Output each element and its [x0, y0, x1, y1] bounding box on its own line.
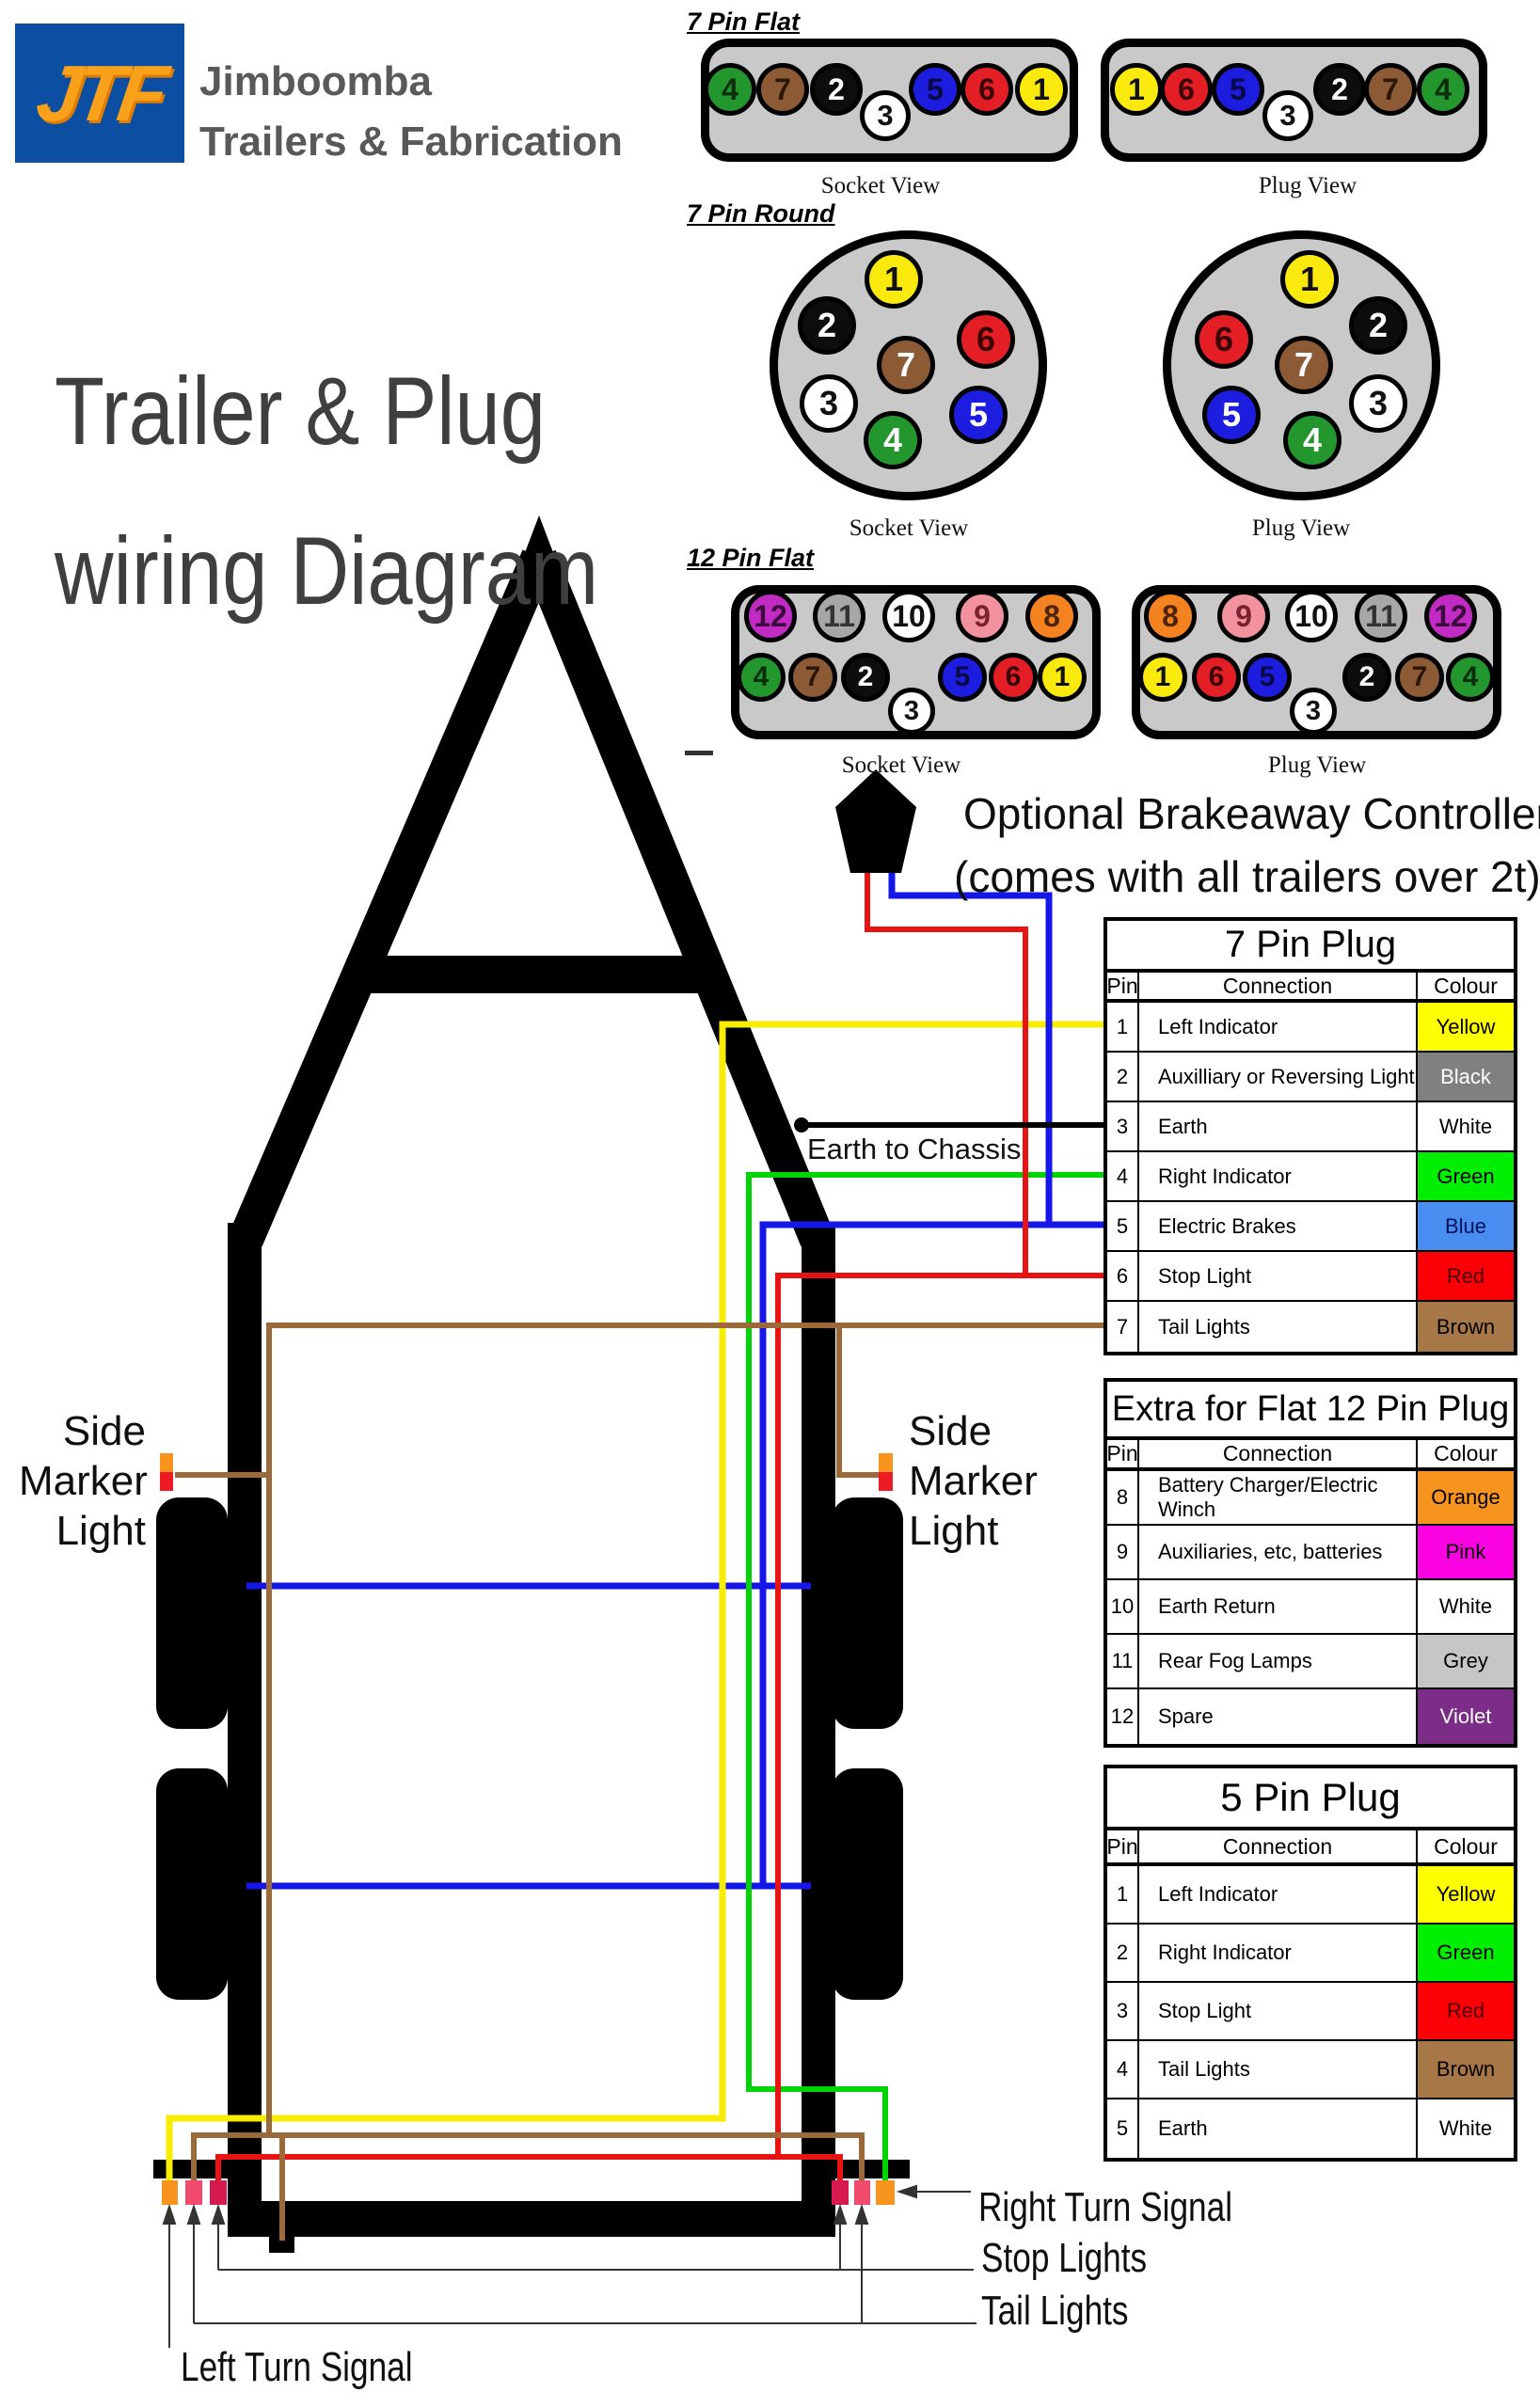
- connection-name: Earth: [1139, 2099, 1418, 2158]
- flat7-plug-pin-7: 7: [1364, 63, 1417, 116]
- colour-cell: Black: [1418, 1053, 1514, 1101]
- round7-socket-pin-4: 4: [864, 411, 922, 469]
- round7-socket-pin-1: 1: [865, 250, 923, 309]
- flat12-socket-pin-10: 10: [882, 590, 935, 642]
- round7-plug-pin-3: 3: [1349, 374, 1407, 433]
- table-7pin-row-7: 7Tail LightsBrown: [1107, 1302, 1514, 1352]
- colour-cell: White: [1418, 1102, 1514, 1150]
- brakeaway-label-line2: (comes with all trailers over 2t): [954, 851, 1540, 902]
- pin-number: 5: [1107, 1202, 1139, 1250]
- round7-socket-pin-2: 2: [798, 296, 856, 355]
- flat12-plug-pin-10: 10: [1285, 590, 1338, 642]
- colour-cell: Yellow: [1418, 1866, 1514, 1923]
- colour-cell: Blue: [1418, 1202, 1514, 1250]
- connection-name: Rear Fog Lamps: [1139, 1635, 1418, 1687]
- colour-cell: Green: [1418, 1925, 1514, 1981]
- connection-name: Spare: [1139, 1689, 1418, 1744]
- flat12-socket-pin-4: 4: [737, 653, 786, 702]
- table-12pin-extra-row-10: 10Earth ReturnWhite: [1107, 1580, 1514, 1635]
- flat7-plug-pin-4: 4: [1417, 63, 1469, 116]
- wire-brown-right-marker: [839, 1325, 879, 1475]
- earth-to-chassis-label: Earth to Chassis: [807, 1133, 1021, 1166]
- table-12pin-extra-header-connection: Connection: [1139, 1440, 1418, 1467]
- table-7pin-row-5: 5Electric BrakesBlue: [1107, 1202, 1514, 1252]
- flat7-plug-pin-5: 5: [1212, 63, 1264, 116]
- connection-name: Stop Light: [1139, 1983, 1418, 2039]
- table-5pin: 5 Pin PlugPinConnectionColour1Left Indic…: [1103, 1765, 1517, 2162]
- connection-name: Earth: [1139, 1102, 1418, 1150]
- section-label-7pin-round: 7 Pin Round: [687, 199, 835, 229]
- left-frame-rail: [228, 1223, 262, 2237]
- table-5pin-header-colour: Colour: [1418, 1830, 1514, 1862]
- table-7pin-header-connection: Connection: [1139, 973, 1418, 999]
- flat7-plug-pin-1: 1: [1110, 63, 1163, 116]
- wiring-diagram-page: JTF Jimboomba Trailers & Fabrication Tra…: [0, 0, 1540, 2408]
- flat12-socket-pin-2: 2: [841, 653, 890, 702]
- caption-flat7-plug: Plug View: [1195, 173, 1421, 199]
- flat12-plug-pin-7: 7: [1395, 653, 1444, 702]
- flat12-plug-pin-2: 2: [1342, 653, 1391, 702]
- pin-number: 4: [1107, 2041, 1139, 2098]
- table-12pin-extra-row-12: 12SpareViolet: [1107, 1689, 1514, 1744]
- flat12-plug-pin-5: 5: [1243, 653, 1292, 702]
- flat12-plug-pin-8: 8: [1144, 590, 1197, 642]
- table-5pin-row-3: 3Stop LightRed: [1107, 1983, 1514, 2041]
- caption-flat12-plug: Plug View: [1204, 752, 1430, 779]
- pin-number: 10: [1107, 1580, 1139, 1633]
- colour-cell: Brown: [1418, 2041, 1514, 2098]
- flat12-socket-pin-1: 1: [1038, 653, 1087, 702]
- connection-name: Earth Return: [1139, 1580, 1418, 1633]
- connection-name: Right Indicator: [1139, 1152, 1418, 1200]
- side-marker-label-left: Side Marker Light: [19, 1406, 146, 1556]
- flat12-plug-pin-11: 11: [1355, 590, 1407, 642]
- flat7-socket-pin-4: 4: [704, 63, 756, 116]
- table-5pin-row-2: 2Right IndicatorGreen: [1107, 1925, 1514, 1983]
- connection-name: Tail Lights: [1139, 1302, 1418, 1352]
- table-5pin-header-connection: Connection: [1139, 1830, 1418, 1862]
- table-12pin-extra-header-colour: Colour: [1418, 1440, 1514, 1467]
- wire-yellow: [169, 1024, 1103, 2182]
- caption-flat12-socket: Socket View: [788, 752, 1014, 779]
- flat12-socket-pin-12: 12: [744, 590, 797, 642]
- lamp-right-stop: [832, 2180, 849, 2205]
- flat7-plug-pin-6: 6: [1160, 63, 1213, 116]
- section-label-7pin-flat: 7 Pin Flat: [687, 8, 800, 37]
- table-5pin-row-5: 5EarthWhite: [1107, 2099, 1514, 2158]
- connection-name: Left Indicator: [1139, 1003, 1418, 1051]
- table-7pin-header-colour: Colour: [1418, 973, 1514, 999]
- section-label-12pin-flat: 12 Pin Flat: [687, 544, 814, 573]
- round7-plug-pin-1: 1: [1280, 250, 1339, 309]
- wheel: [156, 1768, 228, 2000]
- wire-red-bus: [218, 2157, 840, 2182]
- round7-socket-pin-5: 5: [949, 386, 1008, 444]
- round7-plug-pin-7: 7: [1275, 336, 1333, 394]
- pin-number: 12: [1107, 1689, 1139, 1744]
- page-title: Trailer & Plug wiring Diagram: [55, 331, 598, 651]
- pin-number: 4: [1107, 1152, 1139, 1200]
- round7-socket-pin-6: 6: [957, 310, 1015, 369]
- flat12-socket-pin-3: 3: [888, 688, 935, 735]
- pin-number: 8: [1107, 1471, 1139, 1524]
- flat12-socket-pin-9: 9: [956, 590, 1008, 642]
- flat12-socket-pin-11: 11: [813, 590, 865, 642]
- brand-name-line1: Jimboomba: [199, 58, 432, 105]
- colour-cell: Brown: [1418, 1302, 1514, 1352]
- flat12-socket-pin-6: 6: [989, 653, 1038, 702]
- lamp-right-tail: [854, 2180, 870, 2205]
- tail-lights-label: Tail Lights: [981, 2288, 1129, 2335]
- table-5pin-row-4: 4Tail LightsBrown: [1107, 2041, 1514, 2099]
- pin-number: 11: [1107, 1635, 1139, 1687]
- flat12-plug-pin-3: 3: [1290, 688, 1337, 735]
- table-7pin-row-6: 6Stop LightRed: [1107, 1252, 1514, 1302]
- wheel: [156, 1497, 228, 1729]
- table-7pin-row-2: 2Auxilliary or Reversing LightBlack: [1107, 1053, 1514, 1102]
- flat7-socket-pin-7: 7: [756, 63, 809, 116]
- connection-name: Right Indicator: [1139, 1925, 1418, 1981]
- table-5pin-header-pin: Pin: [1107, 1830, 1139, 1862]
- small-dash: [685, 751, 713, 755]
- colour-cell: Pink: [1418, 1526, 1514, 1578]
- lamp-left-stop: [210, 2180, 227, 2205]
- table-7pin-row-3: 3EarthWhite: [1107, 1102, 1514, 1152]
- right-lamp-bar: [835, 2160, 910, 2178]
- right-frame-rail: [802, 1223, 835, 2237]
- table-12pin-extra-row-9: 9Auxiliaries, etc, batteriesPink: [1107, 1526, 1514, 1580]
- caption-round7-plug: Plug View: [1188, 515, 1414, 542]
- table-7pin-row-1: 1Left IndicatorYellow: [1107, 1003, 1514, 1053]
- brakeaway-controller: [835, 769, 916, 873]
- colour-cell: Yellow: [1418, 1003, 1514, 1051]
- table-12pin-extra-row-11: 11Rear Fog LampsGrey: [1107, 1635, 1514, 1689]
- brand-name-line2: Trailers & Fabrication: [199, 119, 623, 166]
- brakeaway-label-line1: Optional Brakeaway Controller: [963, 788, 1540, 839]
- table-12pin-extra-title: Extra for Flat 12 Pin Plug: [1107, 1382, 1514, 1440]
- colour-cell: Violet: [1418, 1689, 1514, 1744]
- colour-cell: Grey: [1418, 1635, 1514, 1687]
- connection-name: Auxiliaries, etc, batteries: [1139, 1526, 1418, 1578]
- flat12-socket-pin-8: 8: [1025, 590, 1078, 642]
- colour-cell: Red: [1418, 1983, 1514, 2039]
- connection-name: Tail Lights: [1139, 2041, 1418, 2098]
- connection-name: Auxilliary or Reversing Light: [1139, 1053, 1418, 1101]
- side-marker-label-right: Side Marker Light: [909, 1406, 1038, 1556]
- flat12-socket-pin-7: 7: [788, 653, 837, 702]
- caption-flat7-socket: Socket View: [768, 173, 993, 199]
- stop-lights-label: Stop Lights: [981, 2235, 1147, 2282]
- earth-dot: [794, 1117, 809, 1133]
- table-5pin-title: 5 Pin Plug: [1107, 1768, 1514, 1830]
- table-12pin-extra: Extra for Flat 12 Pin PlugPinConnectionC…: [1103, 1378, 1517, 1748]
- pin-number: 2: [1107, 1925, 1139, 1981]
- pin-number: 6: [1107, 1252, 1139, 1300]
- connection-name: Electric Brakes: [1139, 1202, 1418, 1250]
- colour-cell: Orange: [1418, 1471, 1514, 1524]
- flat7-plug-pin-2: 2: [1313, 63, 1366, 116]
- left-turn-signal-label: Left Turn Signal: [181, 2344, 413, 2391]
- flat7-socket-pin-1: 1: [1015, 63, 1068, 116]
- caption-round7-socket: Socket View: [796, 515, 1022, 542]
- table-7pin: 7 Pin PlugPinConnectionColour1Left Indic…: [1103, 917, 1517, 1355]
- round7-plug-pin-6: 6: [1195, 310, 1253, 369]
- colour-cell: Red: [1418, 1252, 1514, 1300]
- connection-name: Battery Charger/Electric Winch: [1139, 1471, 1418, 1524]
- flat12-socket-pin-5: 5: [938, 653, 987, 702]
- pin-number: 7: [1107, 1302, 1139, 1352]
- round7-plug-pin-4: 4: [1283, 411, 1342, 469]
- flat7-socket-pin-2: 2: [810, 63, 863, 116]
- lamp-left-turn: [162, 2180, 178, 2205]
- right-turn-signal-label: Right Turn Signal: [978, 2184, 1232, 2231]
- flat12-plug-pin-1: 1: [1138, 653, 1187, 702]
- wheel: [832, 1768, 903, 2000]
- pin-number: 1: [1107, 1003, 1139, 1051]
- table-7pin-header-pin: Pin: [1107, 973, 1139, 999]
- brand-logo: JTF: [15, 24, 184, 163]
- pin-number: 5: [1107, 2099, 1139, 2158]
- wheel: [832, 1497, 903, 1729]
- lamp-right-turn: [876, 2180, 895, 2205]
- flat7-socket-pin-5: 5: [909, 63, 961, 116]
- rear-cross-member: [228, 2201, 835, 2237]
- pin-number: 3: [1107, 1102, 1139, 1150]
- connection-name: Stop Light: [1139, 1252, 1418, 1300]
- round7-socket-pin-7: 7: [877, 336, 935, 394]
- table-12pin-extra-row-8: 8Battery Charger/Electric WinchOrange: [1107, 1471, 1514, 1526]
- pin-number: 1: [1107, 1866, 1139, 1923]
- flat7-plug-pin-3: 3: [1262, 90, 1313, 141]
- flat12-plug-pin-12: 12: [1424, 590, 1477, 642]
- cross-member: [350, 956, 711, 993]
- flat7-socket-pin-3: 3: [860, 90, 911, 141]
- wire-brakeaway-red: [867, 873, 1025, 1275]
- logo-monogram: JTF: [32, 48, 168, 139]
- table-12pin-extra-header-pin: Pin: [1107, 1440, 1139, 1467]
- round7-plug-pin-5: 5: [1202, 386, 1261, 444]
- colour-cell: Green: [1418, 1152, 1514, 1200]
- connection-name: Left Indicator: [1139, 1866, 1418, 1923]
- table-7pin-row-4: 4Right IndicatorGreen: [1107, 1152, 1514, 1202]
- round7-plug-pin-2: 2: [1349, 296, 1407, 355]
- round7-socket-pin-3: 3: [800, 374, 858, 433]
- flat7-socket-pin-6: 6: [961, 63, 1013, 116]
- colour-cell: White: [1418, 1580, 1514, 1633]
- lamp-left-tail: [185, 2180, 202, 2205]
- table-5pin-row-1: 1Left IndicatorYellow: [1107, 1866, 1514, 1925]
- pin-number: 2: [1107, 1053, 1139, 1101]
- flat12-plug-pin-4: 4: [1446, 653, 1495, 702]
- flat12-plug-pin-9: 9: [1217, 590, 1270, 642]
- colour-cell: White: [1418, 2099, 1514, 2158]
- pin-number: 3: [1107, 1983, 1139, 2039]
- pin-number: 9: [1107, 1526, 1139, 1578]
- flat12-plug-pin-6: 6: [1192, 653, 1241, 702]
- table-7pin-title: 7 Pin Plug: [1107, 921, 1514, 973]
